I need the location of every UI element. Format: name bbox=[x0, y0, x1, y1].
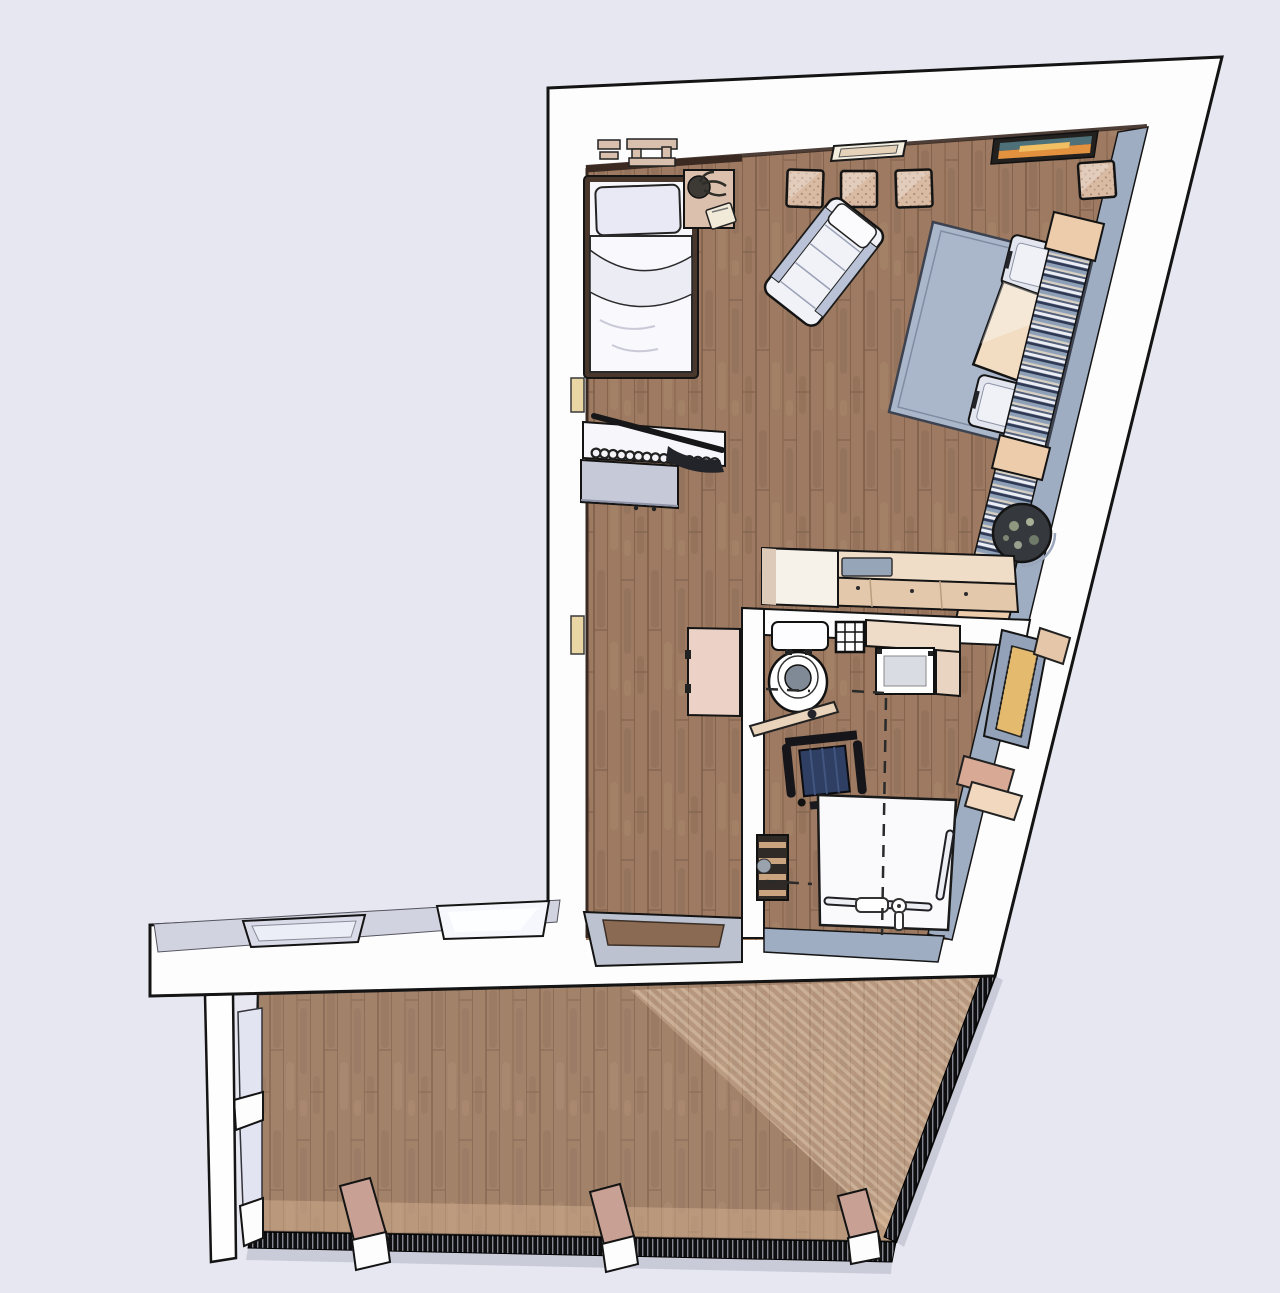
pouf-3 bbox=[895, 169, 932, 207]
dresser bbox=[581, 460, 678, 511]
terrace-door-threshold bbox=[584, 912, 742, 966]
floorplan-svg bbox=[0, 0, 1280, 1293]
kitchen-counter bbox=[762, 548, 1018, 612]
south-window-2 bbox=[437, 901, 549, 939]
shower bbox=[818, 795, 956, 930]
glass-pane-1 bbox=[238, 1008, 262, 1102]
glass-wall-bar-2 bbox=[240, 1198, 263, 1246]
bathroom-shelf bbox=[757, 835, 788, 900]
wall-niche-1 bbox=[571, 378, 584, 412]
pouf-1 bbox=[786, 169, 823, 207]
terrace-glass-wall bbox=[205, 993, 263, 1262]
toilet bbox=[769, 622, 828, 712]
glass-pane-2 bbox=[240, 1120, 262, 1208]
plant-icon bbox=[688, 176, 710, 198]
glass-wall-post bbox=[205, 993, 236, 1262]
pillow bbox=[595, 185, 681, 236]
bed bbox=[584, 176, 698, 378]
vanity bbox=[866, 620, 960, 696]
south-window-1 bbox=[243, 915, 365, 947]
nightstand bbox=[684, 170, 736, 230]
pouf-4 bbox=[1078, 161, 1116, 199]
hallway-desk bbox=[685, 628, 740, 716]
wall-grid-shelf bbox=[836, 622, 864, 652]
terrace bbox=[205, 971, 1003, 1274]
floorplan-stage bbox=[0, 0, 1280, 1293]
wall-niche-2 bbox=[571, 616, 584, 654]
pouf-2 bbox=[841, 171, 877, 207]
kitchen-sink bbox=[842, 558, 892, 576]
